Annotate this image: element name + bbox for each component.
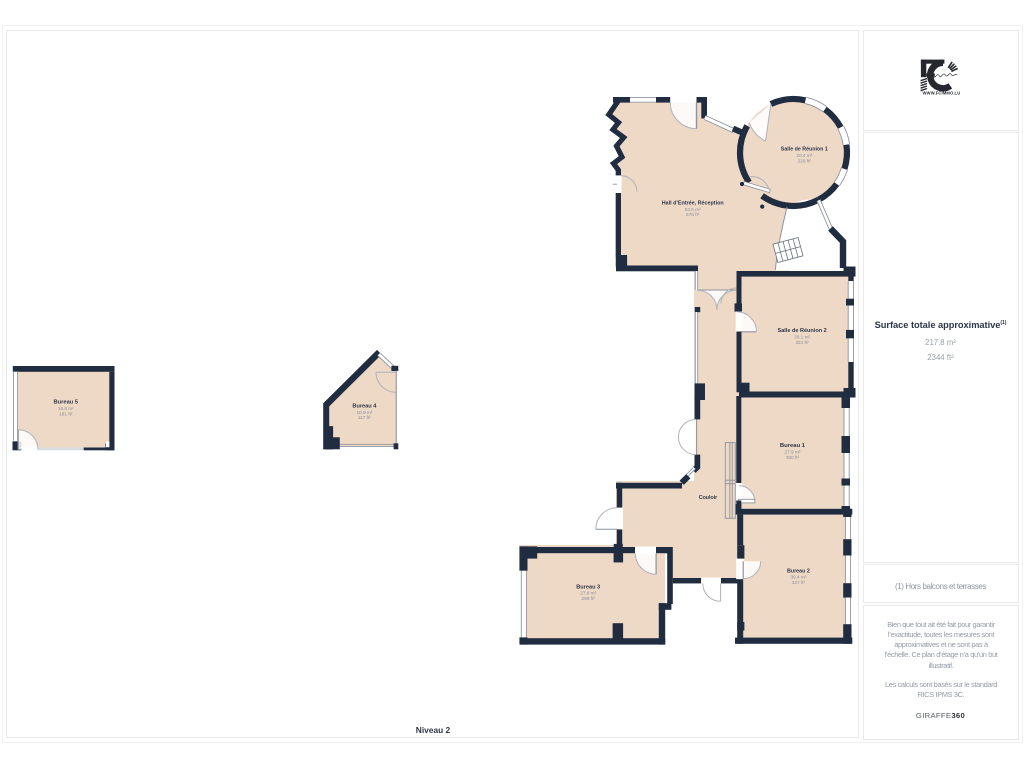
svg-text:299 ft²: 299 ft² [582, 596, 596, 601]
svg-text:576 ft²: 576 ft² [686, 212, 700, 217]
svg-text:20.4 m²: 20.4 m² [796, 153, 812, 158]
svg-text:324 ft²: 324 ft² [795, 340, 809, 345]
svg-text:117 ft²: 117 ft² [358, 415, 371, 420]
svg-text:27.8 m²: 27.8 m² [580, 591, 596, 596]
svg-text:Couloir: Couloir [699, 495, 718, 501]
svg-text:16.8 m²: 16.8 m² [58, 406, 74, 411]
svg-text:30.1 m²: 30.1 m² [794, 334, 810, 339]
svg-text:WWW.FCIMMO.LU: WWW.FCIMMO.LU [923, 91, 961, 96]
svg-text:10.9 m²: 10.9 m² [356, 410, 372, 415]
svg-text:53.5 m²: 53.5 m² [685, 207, 701, 212]
svg-text:327 ft²: 327 ft² [792, 580, 806, 585]
svg-text:Salle de Réunion 1: Salle de Réunion 1 [781, 147, 829, 153]
svg-text:300 ft²: 300 ft² [786, 455, 800, 460]
svg-text:Bureau 3: Bureau 3 [576, 584, 601, 590]
svg-text:Bureau 5: Bureau 5 [54, 400, 79, 406]
svg-text:Bureau 2: Bureau 2 [787, 568, 810, 574]
svg-text:Salle de Réunion 2: Salle de Réunion 2 [778, 328, 828, 334]
svg-text:27.9 m²: 27.9 m² [785, 449, 801, 454]
svg-text:Bureau 1: Bureau 1 [780, 443, 806, 449]
svg-text:Bureau 4: Bureau 4 [352, 403, 377, 409]
svg-text:Hall d’Entrée, Réception: Hall d’Entrée, Réception [662, 200, 724, 206]
svg-text:220 ft²: 220 ft² [798, 158, 812, 163]
svg-text:30.4 m²: 30.4 m² [790, 575, 806, 580]
svg-text:181 ft²: 181 ft² [59, 412, 73, 417]
